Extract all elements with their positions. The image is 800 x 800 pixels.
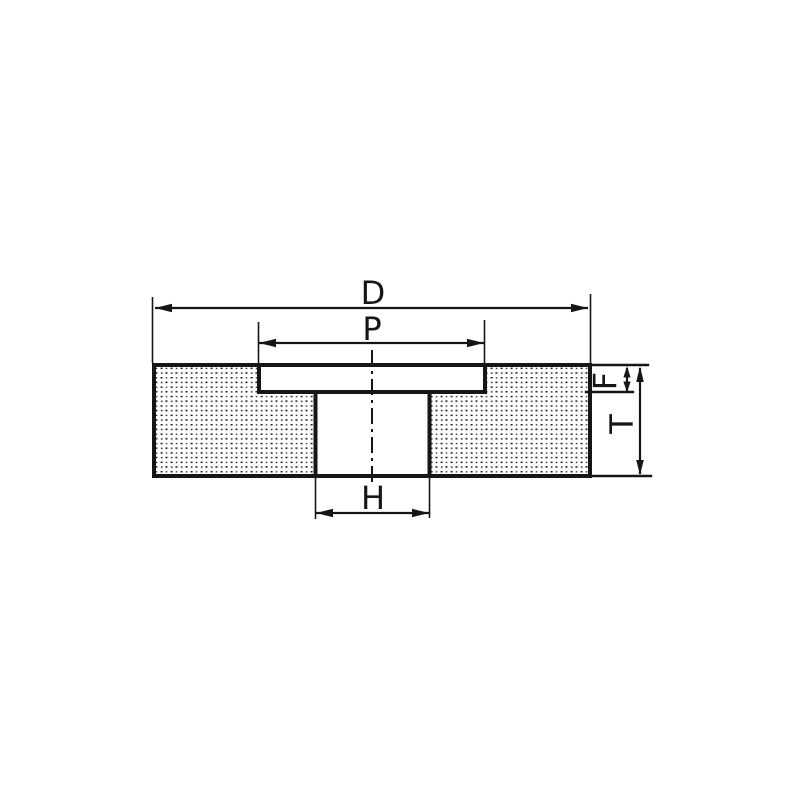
wheel-section-drawing: D P H F: [0, 0, 800, 800]
p-arrow-left-icon: [259, 339, 276, 347]
d-arrow-right-icon: [571, 304, 588, 312]
dimension-bore-diameter: H: [316, 478, 430, 519]
dimension-recess-depth: F: [586, 366, 631, 393]
t-arrow-down-icon: [636, 460, 644, 475]
d-arrow-left-icon: [155, 304, 172, 312]
f-dimension-label: F: [586, 372, 624, 390]
f-arrow-up-icon: [623, 366, 630, 378]
wheel-cross-section: [154, 365, 651, 476]
h-dimension-label: H: [361, 479, 385, 517]
p-dimension-label: P: [362, 310, 381, 348]
t-dimension-label: T: [603, 414, 641, 435]
d-dimension-label: D: [361, 274, 386, 312]
drawing-page: D P H F: [0, 0, 800, 800]
h-arrow-right-icon: [412, 509, 429, 517]
p-arrow-right-icon: [467, 339, 484, 347]
t-arrow-up-icon: [636, 367, 644, 383]
h-arrow-left-icon: [316, 509, 333, 517]
